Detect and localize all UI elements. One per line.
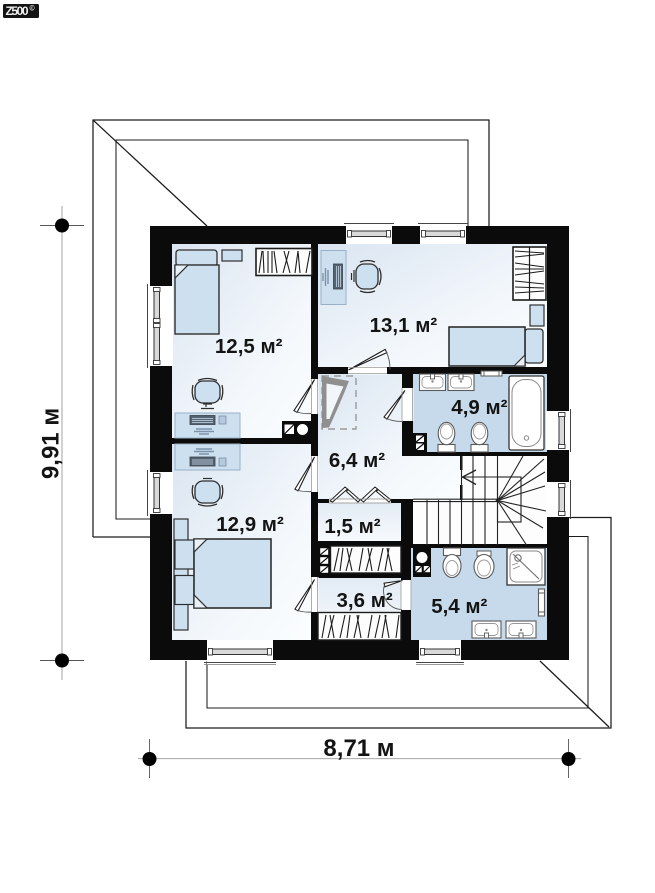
svg-text:6,4 м²: 6,4 м² bbox=[329, 449, 385, 472]
svg-text:1,5 м²: 1,5 м² bbox=[324, 515, 380, 538]
svg-text:9,91 м: 9,91 м bbox=[38, 408, 65, 479]
svg-text:12,9 м²: 12,9 м² bbox=[216, 513, 284, 536]
svg-text:5,4 м²: 5,4 м² bbox=[431, 595, 487, 618]
svg-text:3,6 м²: 3,6 м² bbox=[337, 589, 393, 612]
svg-text:8,71 м: 8,71 м bbox=[323, 735, 394, 762]
svg-text:4,9 м²: 4,9 м² bbox=[451, 396, 507, 419]
svg-text:©: © bbox=[30, 5, 36, 13]
svg-text:Z500: Z500 bbox=[6, 4, 29, 18]
svg-text:12,5 м²: 12,5 м² bbox=[215, 335, 283, 358]
svg-text:13,1 м²: 13,1 м² bbox=[370, 314, 438, 337]
